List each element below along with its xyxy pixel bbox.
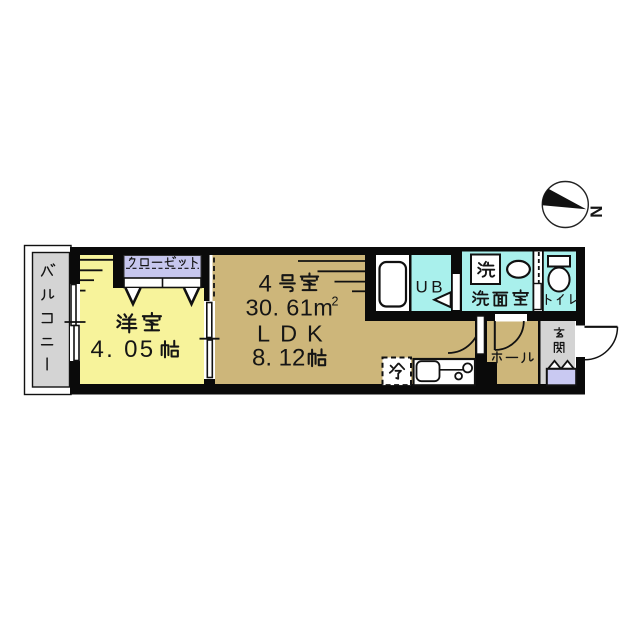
svg-text:LDK: LDK	[257, 321, 333, 347]
svg-text:UB: UB	[416, 278, 447, 297]
svg-text:N: N	[587, 206, 606, 218]
svg-text:4. 05: 4. 05	[91, 336, 156, 363]
svg-text:4: 4	[259, 271, 272, 298]
svg-text:30. 61m: 30. 61m	[246, 295, 334, 321]
svg-text:2: 2	[332, 295, 339, 309]
svg-text:8. 12: 8. 12	[252, 345, 305, 372]
